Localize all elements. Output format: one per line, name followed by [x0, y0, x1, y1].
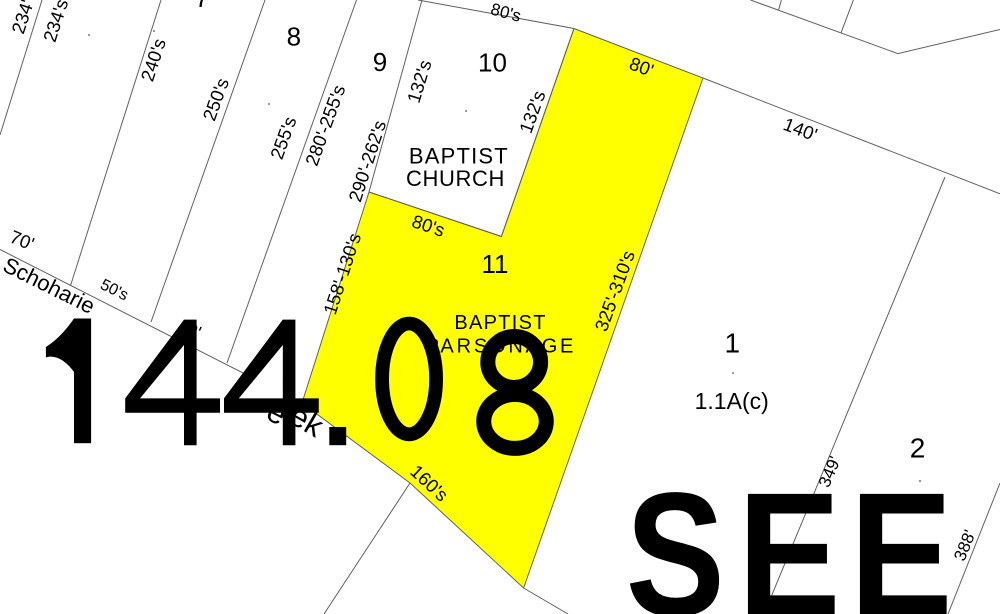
svg-text:9: 9: [373, 47, 387, 77]
svg-text:8: 8: [287, 22, 301, 52]
svg-text:7: 7: [195, 0, 209, 13]
svg-text:BAPTIST: BAPTIST: [454, 312, 546, 334]
svg-text:E: E: [850, 457, 953, 614]
svg-text:CHURCH: CHURCH: [406, 166, 505, 191]
svg-text:11: 11: [482, 249, 509, 279]
svg-text:1: 1: [725, 328, 741, 359]
svg-text:BAPTIST: BAPTIST: [409, 144, 509, 169]
svg-text:1.1A(c): 1.1A(c): [695, 388, 769, 414]
svg-text:S: S: [626, 455, 725, 614]
svg-text:10: 10: [478, 48, 507, 78]
svg-text:E: E: [738, 457, 841, 614]
